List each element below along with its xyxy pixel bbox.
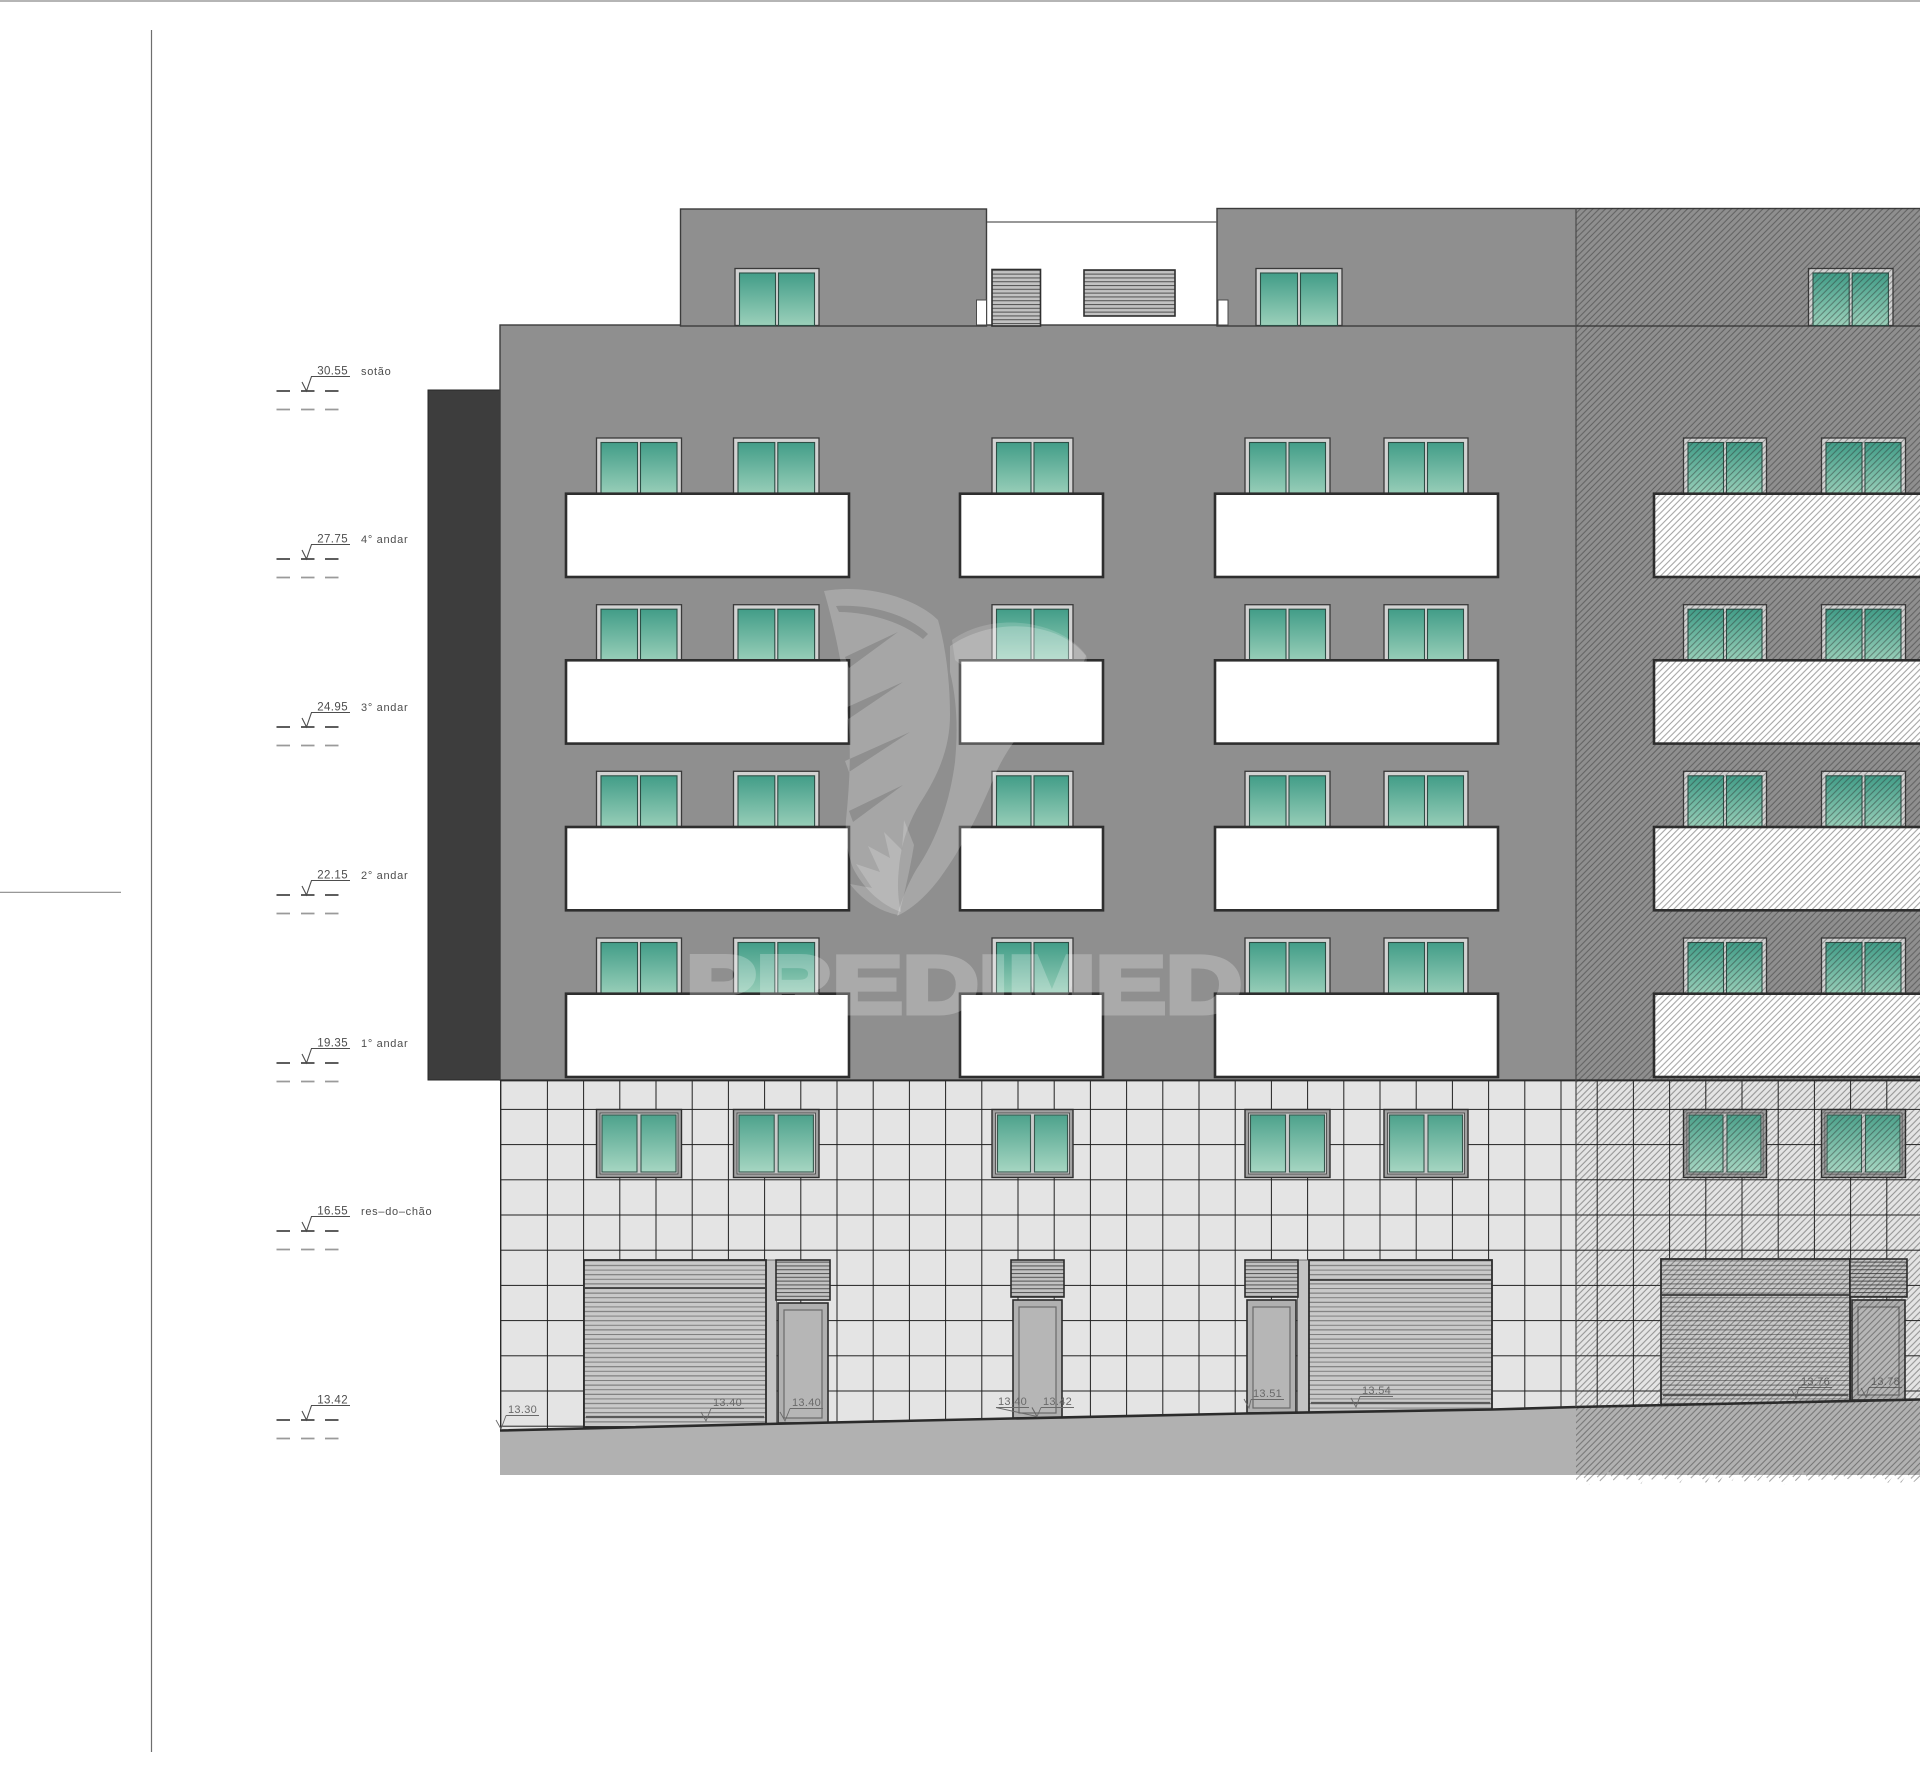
svg-text:res–do–chão: res–do–chão [361,1206,432,1218]
svg-text:19.35: 19.35 [317,1038,348,1050]
svg-text:13.40: 13.40 [792,1397,821,1409]
svg-text:1° andar: 1° andar [361,1038,408,1050]
svg-text:2° andar: 2° andar [361,870,408,882]
svg-text:4° andar: 4° andar [361,534,408,546]
svg-text:27.75: 27.75 [317,534,348,546]
svg-text:PREDIMED: PREDIMED [686,940,1242,1031]
svg-text:3° andar: 3° andar [361,702,408,714]
svg-text:13.30: 13.30 [508,1404,537,1416]
svg-text:13.42: 13.42 [1043,1396,1072,1408]
svg-text:30.55: 30.55 [317,366,348,378]
svg-text:16.55: 16.55 [317,1206,348,1218]
svg-text:22.15: 22.15 [317,870,348,882]
svg-text:sotão: sotão [361,366,391,378]
svg-text:13.40: 13.40 [998,1396,1027,1408]
svg-text:13.51: 13.51 [1253,1388,1282,1400]
svg-text:24.95: 24.95 [317,702,348,714]
svg-text:13.42: 13.42 [317,1395,348,1407]
svg-text:13.40: 13.40 [713,1397,742,1409]
svg-text:13.54: 13.54 [1362,1385,1391,1397]
